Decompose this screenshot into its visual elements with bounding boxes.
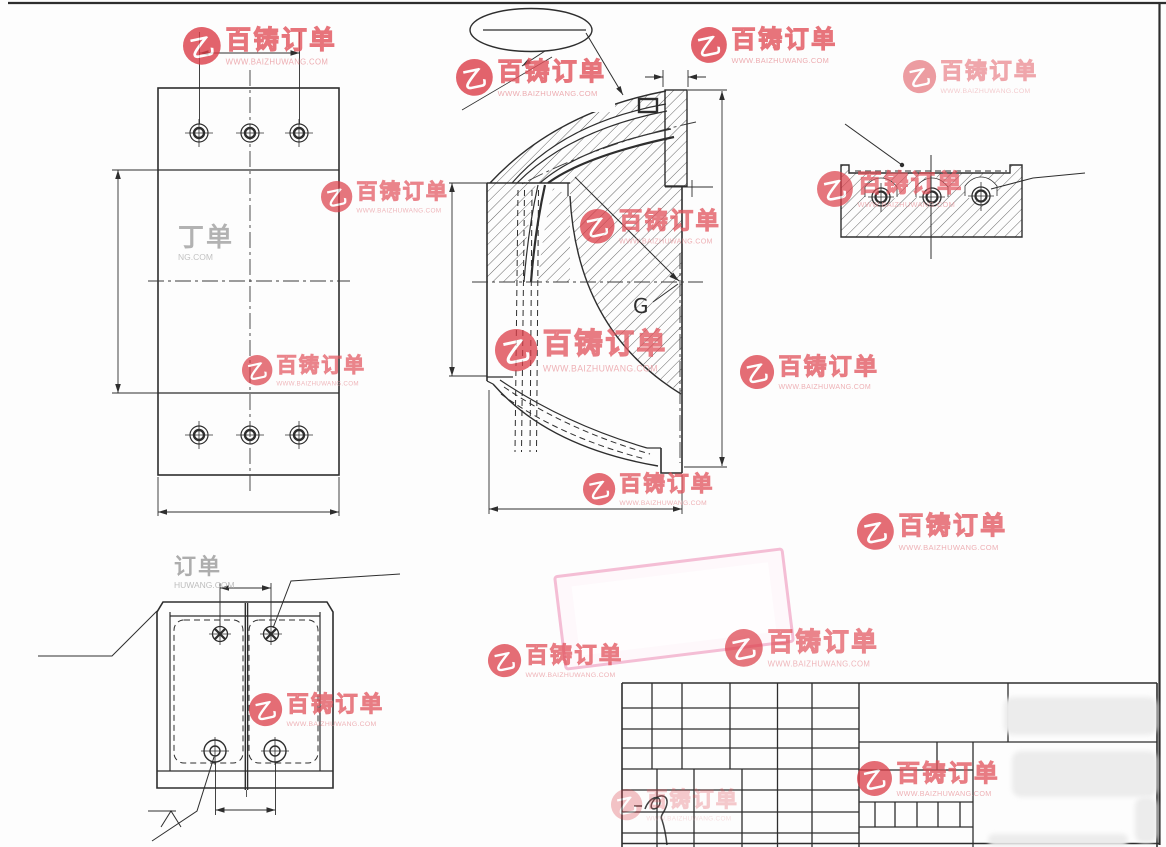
dimension-flange-width	[645, 70, 706, 87]
erased-area	[1135, 797, 1157, 843]
bottom-view	[38, 574, 400, 841]
erased-area	[1012, 751, 1157, 797]
dimension-bottom	[158, 477, 339, 516]
bolt-hole	[285, 119, 313, 147]
leader-line	[845, 124, 902, 165]
bolt-hole	[185, 421, 213, 449]
counterbore-hole	[201, 737, 229, 765]
hidden-lip-line	[504, 387, 650, 454]
hidden-pocket	[249, 620, 318, 763]
finish-symbol	[148, 757, 214, 841]
bolt-hole	[185, 119, 213, 147]
counterbore-hole	[261, 737, 289, 765]
top-section-view	[841, 124, 1085, 259]
sheet-border	[8, 3, 1166, 845]
drawing-sheet: G	[0, 0, 1166, 847]
plate-outline	[158, 88, 339, 475]
section-view: G	[449, 9, 727, 515]
dimension-left	[112, 170, 158, 393]
leader-line	[38, 611, 157, 656]
erased-area	[988, 834, 1128, 846]
front-view	[112, 32, 350, 516]
engineering-drawing: G	[0, 0, 1166, 847]
center-point-label: G	[633, 294, 649, 318]
hatch-region	[538, 188, 570, 282]
bolt-hole	[285, 421, 313, 449]
foot	[661, 448, 682, 473]
hatch-region	[487, 183, 536, 282]
erased-area	[1004, 697, 1157, 735]
dimension-right-height	[684, 90, 727, 467]
dimension-left-height	[449, 183, 487, 376]
dimension-top	[200, 32, 300, 124]
signature	[634, 796, 667, 845]
